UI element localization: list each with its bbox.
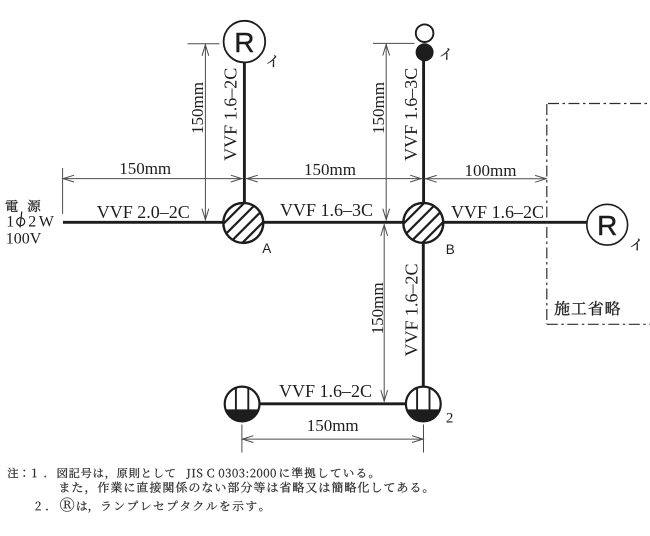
svg-text:VVF 2.0–2C: VVF 2.0–2C — [97, 202, 190, 222]
svg-text:B: B — [446, 242, 455, 257]
svg-text:VVF 1.6–2C: VVF 1.6–2C — [220, 68, 240, 161]
svg-text:150mm: 150mm — [369, 82, 388, 134]
svg-text:A: A — [262, 241, 271, 256]
svg-text:R: R — [234, 27, 254, 58]
svg-text:VVF 1.6–3C: VVF 1.6–3C — [280, 200, 373, 220]
svg-text:R: R — [597, 210, 617, 241]
svg-text:150mm: 150mm — [119, 159, 171, 178]
svg-text:VVF 1.6–2C: VVF 1.6–2C — [279, 381, 372, 401]
svg-text:150mm: 150mm — [368, 282, 387, 334]
svg-text:VVF 1.6–2C: VVF 1.6–2C — [402, 263, 422, 356]
svg-text:150mm: 150mm — [307, 416, 359, 435]
svg-text:1: 1 — [6, 214, 14, 231]
svg-text:150mm: 150mm — [304, 160, 356, 179]
svg-text:W: W — [39, 214, 55, 231]
svg-text:2: 2 — [28, 214, 36, 231]
svg-text:150mm: 150mm — [188, 82, 207, 134]
svg-text:100V: 100V — [6, 231, 42, 248]
svg-text:VVF 1.6–2C: VVF 1.6–2C — [451, 202, 544, 222]
svg-text:2: 2 — [446, 411, 454, 427]
svg-text:VVF 1.6–3C: VVF 1.6–3C — [401, 68, 421, 161]
svg-text:100mm: 100mm — [465, 161, 517, 180]
